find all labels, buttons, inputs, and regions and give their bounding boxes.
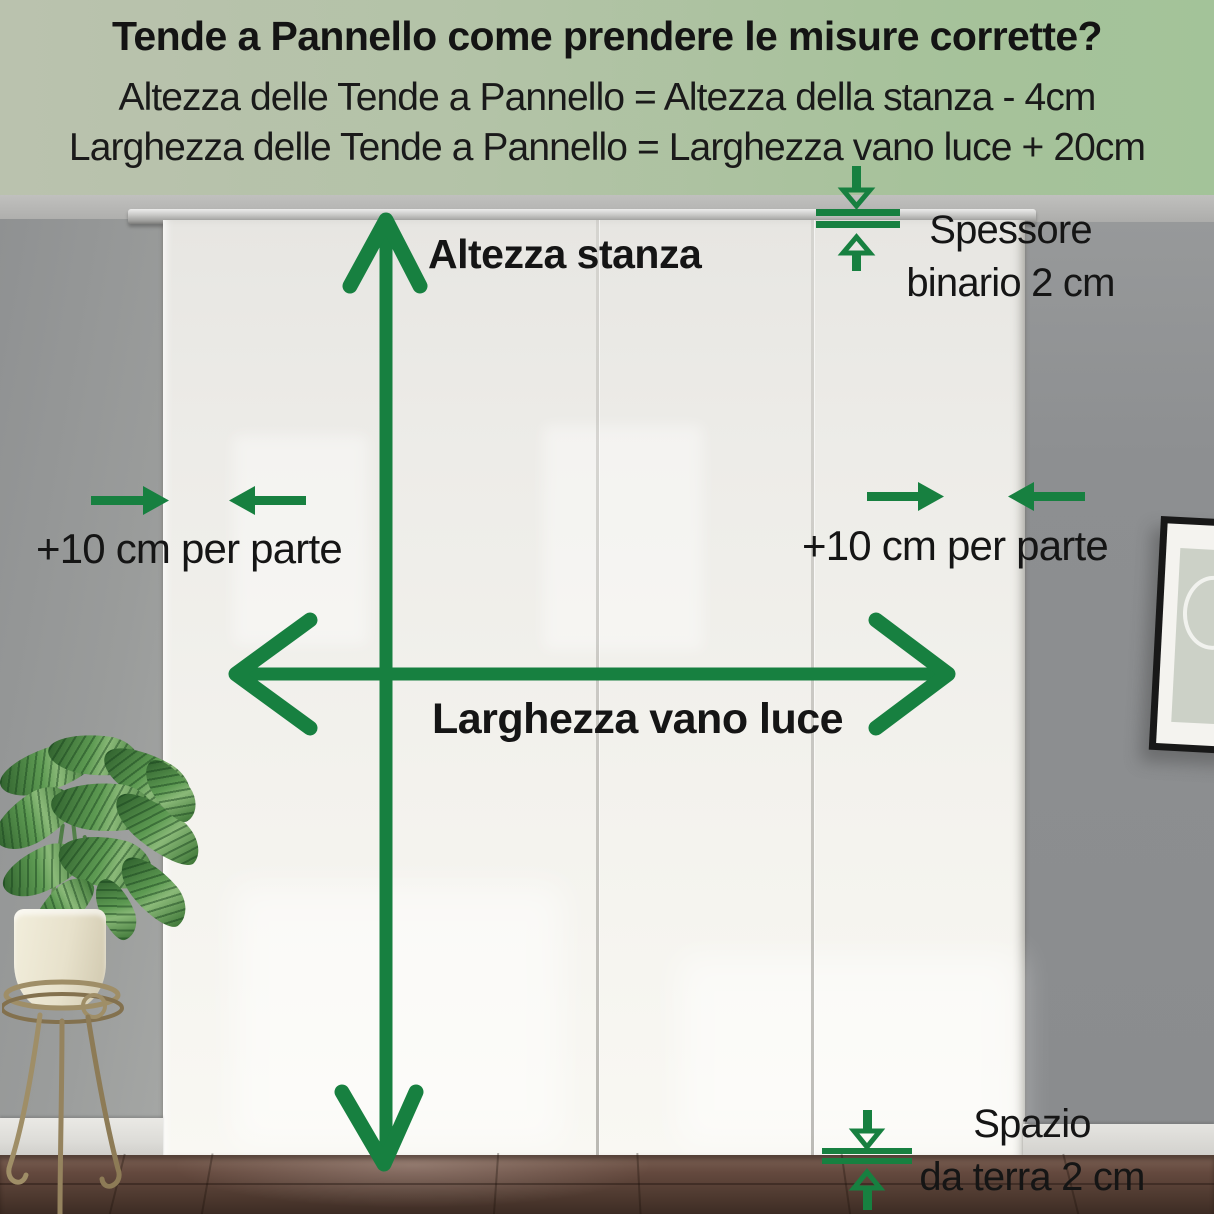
room-height-arrow	[342, 220, 420, 1164]
margin-right-label: +10 cm per parte	[802, 522, 1108, 570]
floor-gap-label-line1: Spazio	[908, 1098, 1156, 1151]
floor-indicator-down-arrowhead	[854, 1131, 880, 1147]
margin-arrow-left-inner	[229, 486, 306, 515]
opening-width-label: Larghezza vano luce	[432, 695, 843, 744]
floor-indicator-up-arrowhead	[854, 1172, 880, 1188]
rail-indicator-up-arrowhead	[843, 237, 870, 253]
rail-thickness-label-line2: binario 2 cm	[893, 257, 1128, 310]
floor-gap-label-line2: da terra 2 cm	[908, 1151, 1156, 1204]
margin-left-label: +10 cm per parte	[36, 525, 342, 573]
measurement-infographic: Tende a Pannello come prendere le misure…	[0, 0, 1214, 1214]
rail-indicator-down-arrowhead	[843, 190, 870, 206]
margin-arrow-left-outer	[91, 486, 169, 515]
rail-thickness-label: Spessore binario 2 cm	[893, 204, 1128, 310]
measurement-arrows-overlay	[0, 0, 1214, 1214]
rail-thickness-label-line1: Spessore	[893, 204, 1128, 257]
margin-arrow-right-outer	[867, 482, 944, 511]
margin-arrow-right-inner	[1008, 482, 1085, 511]
room-height-label: Altezza stanza	[428, 231, 701, 278]
floor-gap-label: Spazio da terra 2 cm	[908, 1098, 1156, 1204]
floor-gap-indicator	[822, 1110, 912, 1210]
